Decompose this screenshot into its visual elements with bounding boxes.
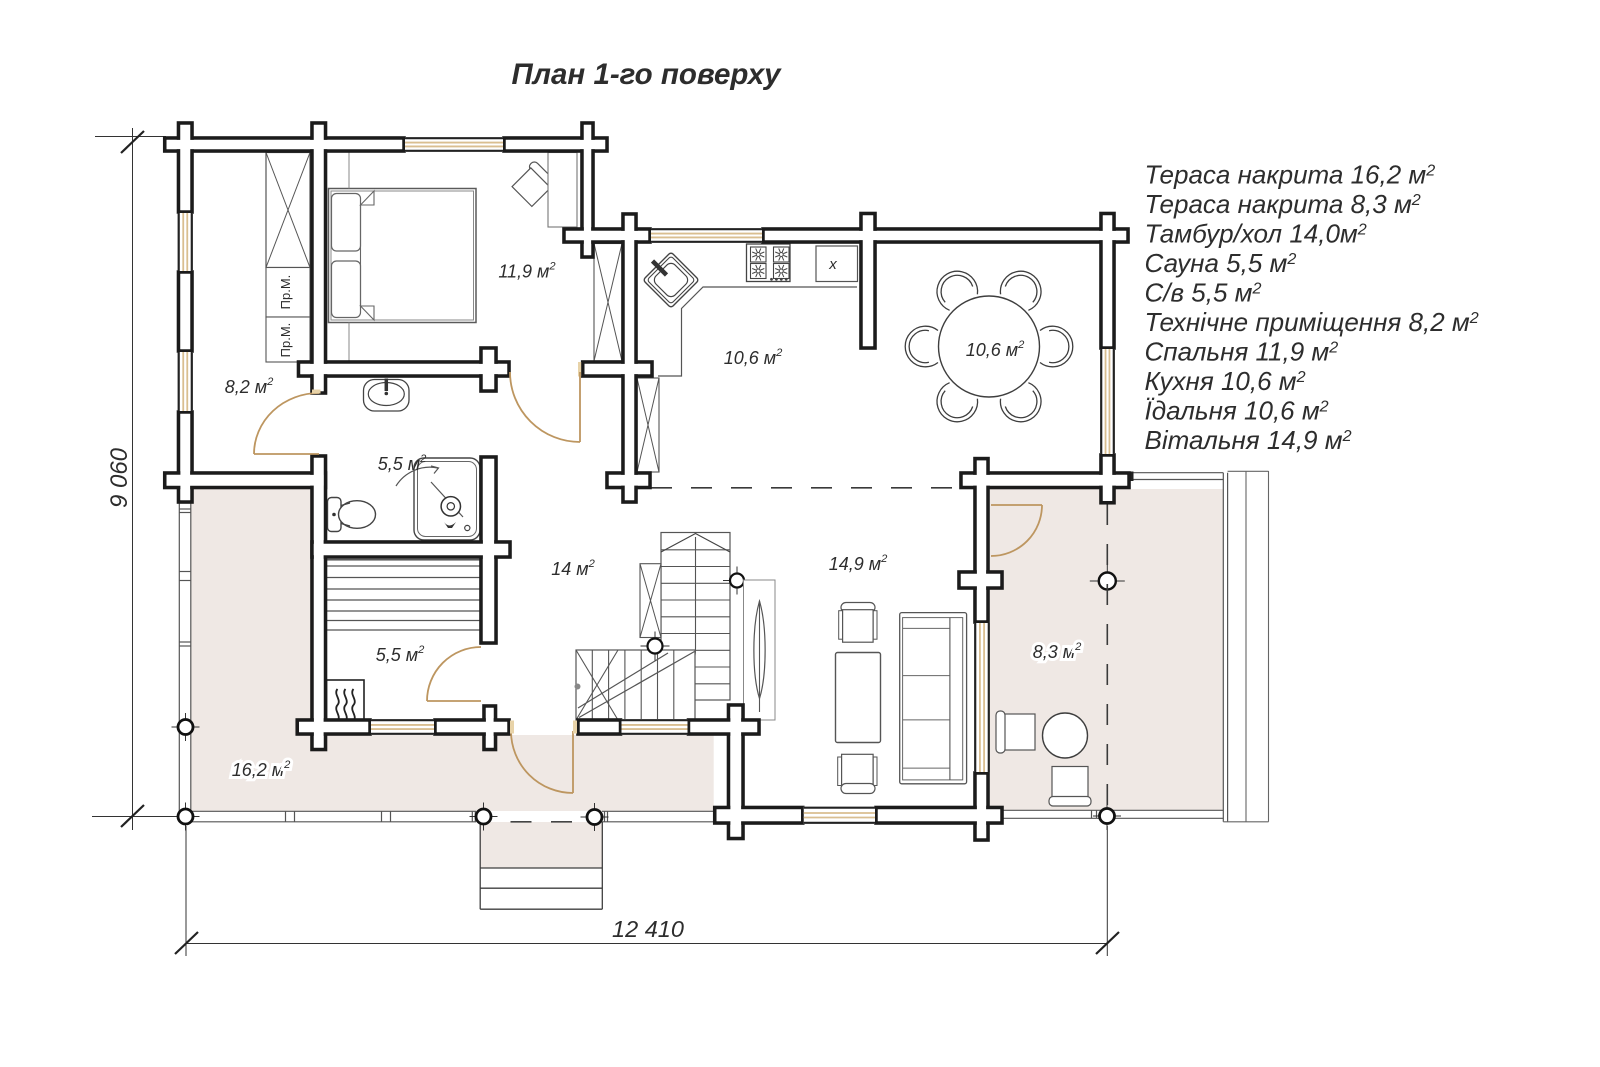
svg-text:Сауна 5,5 м2: Сауна 5,5 м2 [1145, 248, 1297, 278]
svg-text:Спальня 11,9 м2: Спальня 11,9 м2 [1145, 337, 1339, 367]
svg-text:План 1-го поверху: План 1-го поверху [511, 58, 782, 91]
svg-text:10,6 м2: 10,6 м2 [724, 347, 783, 368]
svg-text:12 410: 12 410 [612, 916, 684, 942]
svg-text:Тераса накрита 16,2 м2: Тераса накрита 16,2 м2 [1145, 160, 1436, 190]
svg-text:Кухня 10,6 м2: Кухня 10,6 м2 [1145, 366, 1306, 396]
svg-text:Пр.М.: Пр.М. [278, 275, 293, 310]
svg-text:16,2 м2: 16,2 м2 [232, 759, 291, 780]
svg-text:Тераса накрита 8,3 м2: Тераса накрита 8,3 м2 [1145, 189, 1421, 219]
svg-text:5,5 м2: 5,5 м2 [376, 644, 425, 665]
svg-text:Вітальня 14,9 м2: Вітальня 14,9 м2 [1145, 425, 1352, 455]
svg-text:Пр.М.: Пр.М. [278, 323, 293, 358]
svg-text:Технічне приміщення 8,2 м2: Технічне приміщення 8,2 м2 [1145, 307, 1479, 337]
svg-text:x: x [828, 256, 837, 273]
svg-text:14,9 м2: 14,9 м2 [829, 553, 888, 574]
svg-text:14 м2: 14 м2 [551, 558, 595, 579]
svg-text:8,3 м2: 8,3 м2 [1033, 641, 1082, 662]
svg-text:5,5 м2: 5,5 м2 [378, 453, 427, 474]
svg-text:8,2 м2: 8,2 м2 [225, 376, 274, 397]
svg-text:Їдальня 10,6 м2: Їдальня 10,6 м2 [1145, 396, 1329, 426]
svg-text:10,6 м2: 10,6 м2 [966, 339, 1025, 360]
svg-text:9 060: 9 060 [106, 447, 133, 508]
svg-text:11,9 м2: 11,9 м2 [498, 261, 556, 282]
svg-text:С/в 5,5 м2: С/в 5,5 м2 [1145, 278, 1262, 308]
svg-text:Тамбур/хол 14,0м2: Тамбур/хол 14,0м2 [1145, 219, 1367, 249]
